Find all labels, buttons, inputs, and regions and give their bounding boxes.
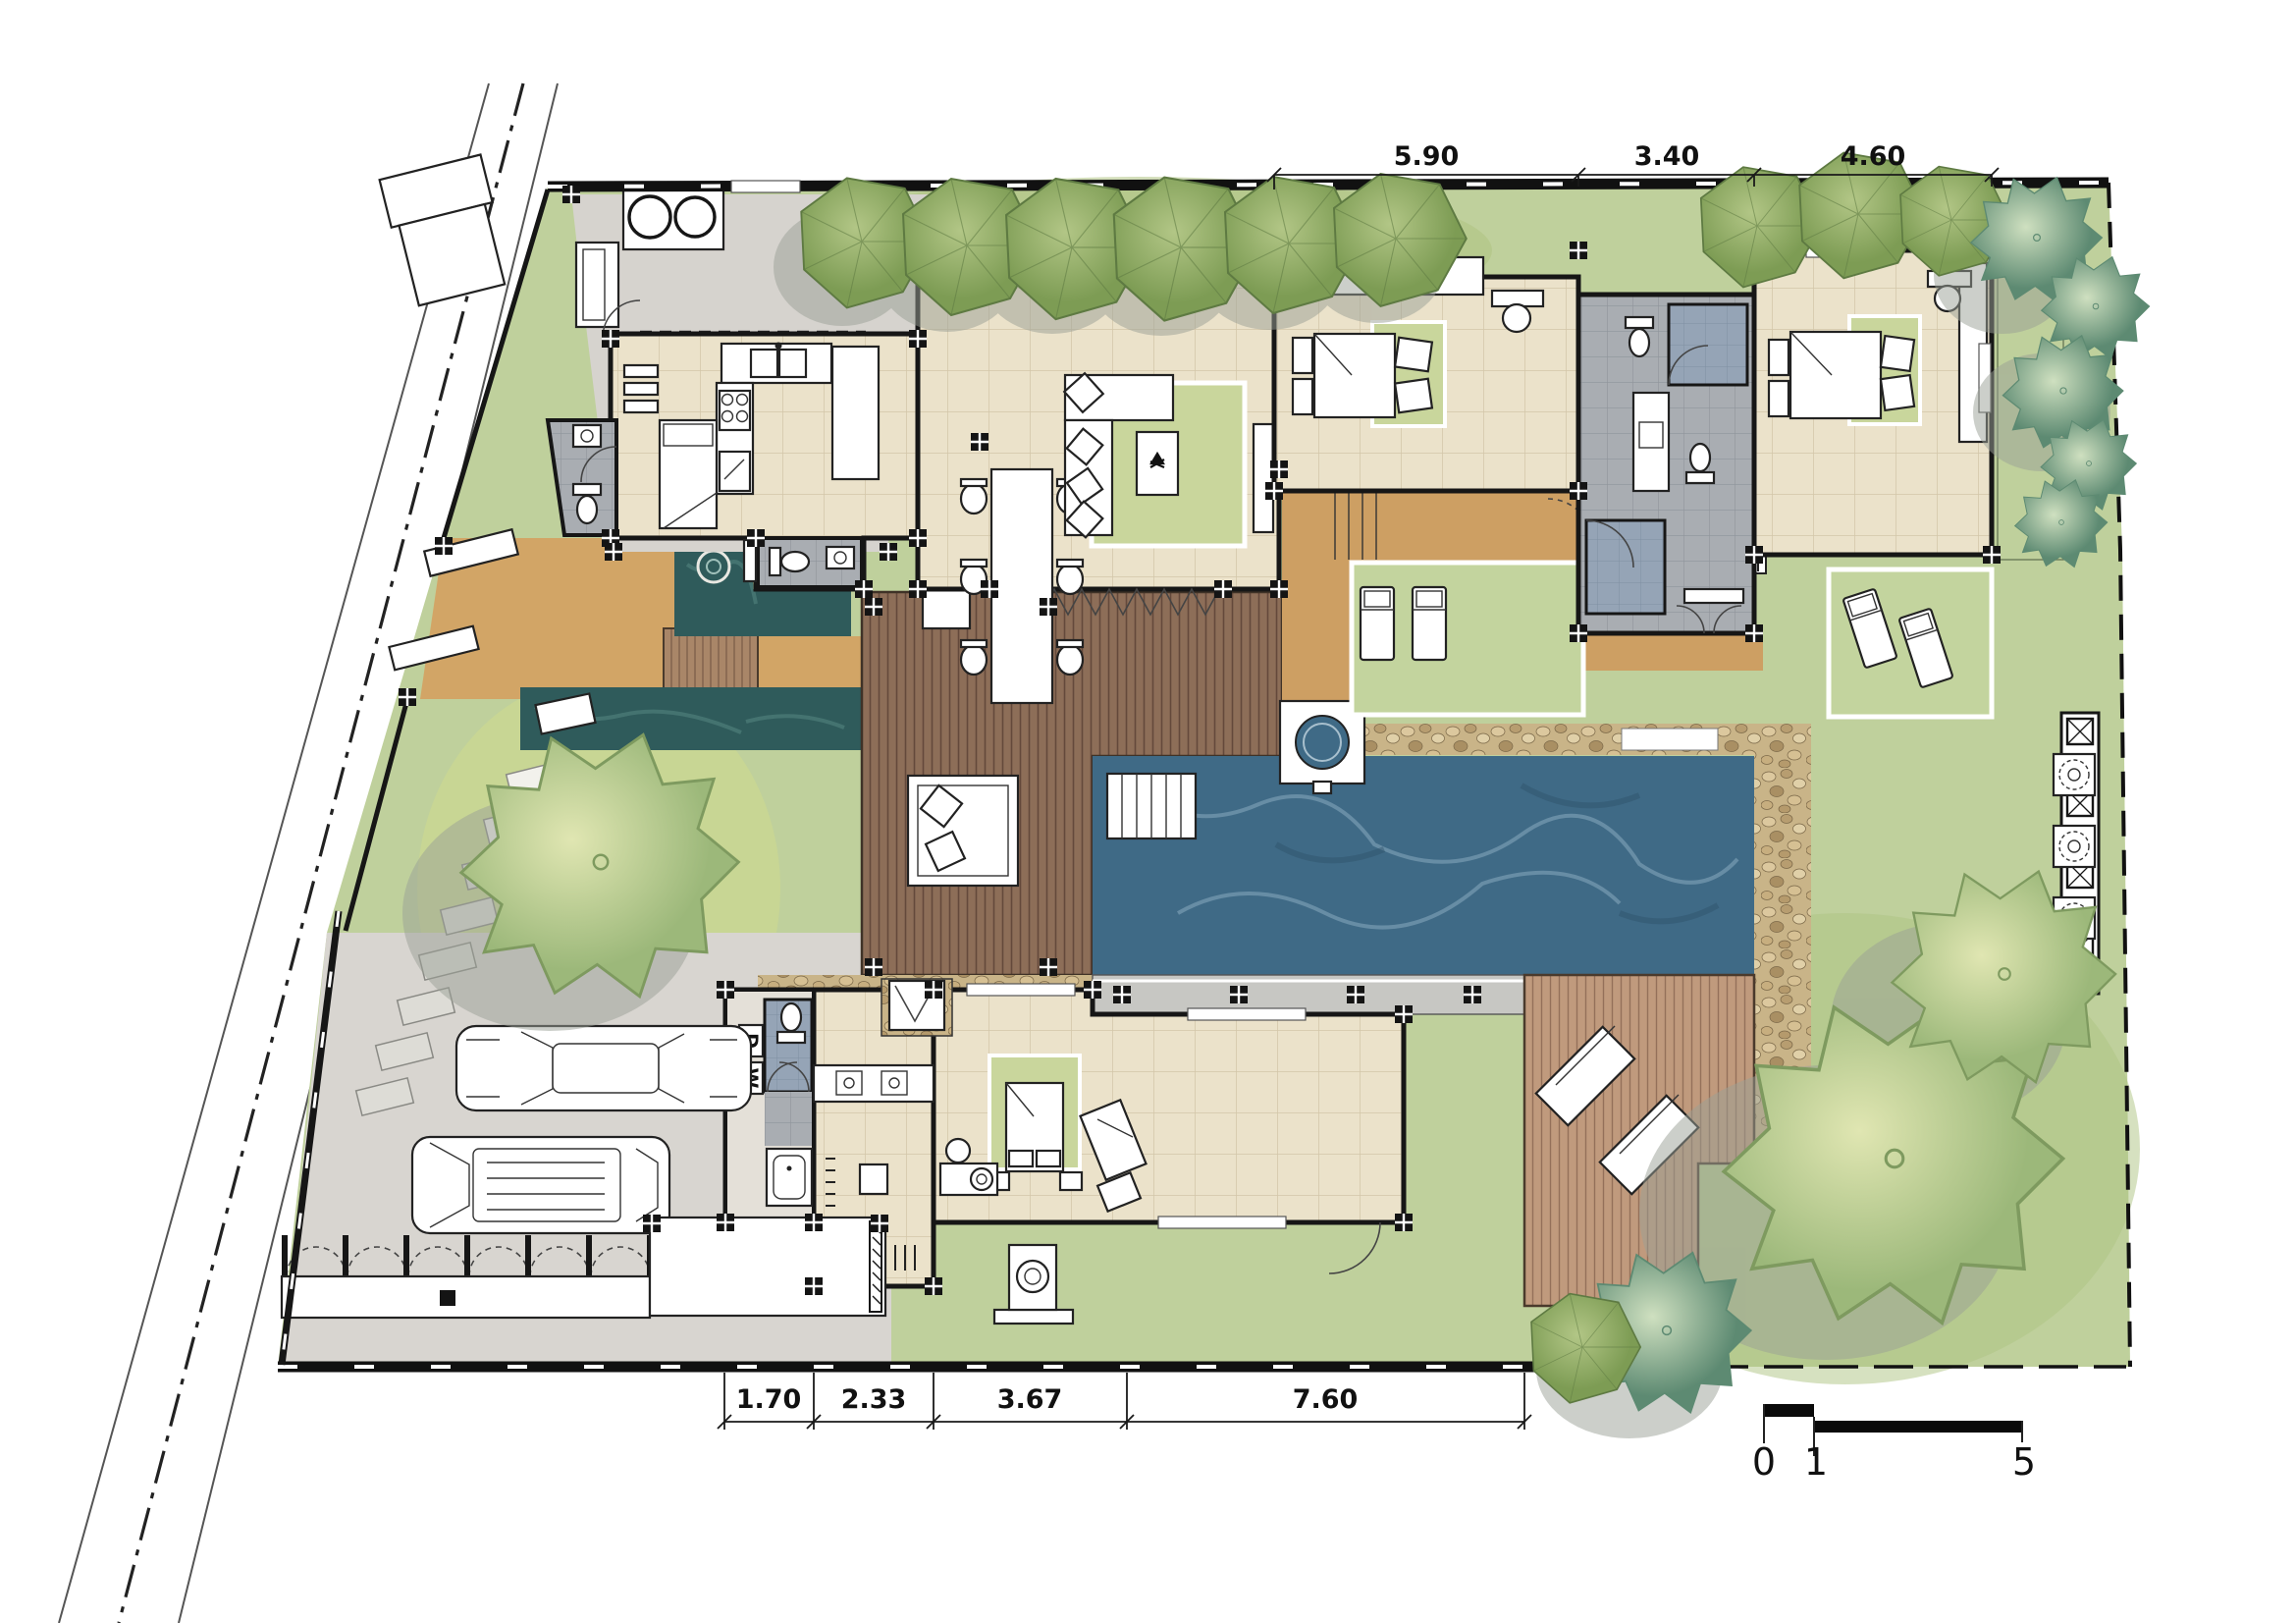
scale-zero: 0 bbox=[1752, 1440, 1776, 1484]
bathroom-block bbox=[1578, 295, 1754, 633]
bedroom2-bed bbox=[1769, 316, 1920, 424]
master-bath-vanity bbox=[814, 1065, 934, 1102]
dim-top-2: 3.40 bbox=[1634, 141, 1700, 172]
pool-walkway bbox=[1093, 975, 1524, 1014]
floor-plan-drawing: D W bbox=[0, 0, 2296, 1623]
scale-five: 5 bbox=[2012, 1440, 2036, 1484]
spa-landing bbox=[1282, 562, 1360, 705]
bedroom1-bed bbox=[1293, 322, 1445, 426]
carport-structure bbox=[650, 1217, 885, 1316]
scale-bar: 0 1 5 bbox=[1752, 1404, 2036, 1484]
refrigerator-pantry bbox=[832, 347, 879, 479]
dim-bottom-2: 2.33 bbox=[841, 1384, 907, 1415]
planter-bench bbox=[282, 1276, 650, 1318]
oven bbox=[720, 452, 750, 491]
water-basin bbox=[698, 551, 729, 582]
shower-2 bbox=[1586, 520, 1665, 614]
closet-island bbox=[860, 1164, 887, 1194]
water-tank-2 bbox=[675, 197, 715, 237]
dimension-bottom: 1.70 2.33 3.67 7.60 bbox=[718, 1373, 1531, 1430]
dim-bottom-1: 1.70 bbox=[736, 1384, 802, 1415]
master-desk-chair bbox=[946, 1139, 970, 1163]
bedroom1-chair bbox=[1503, 304, 1530, 332]
shower-1 bbox=[1669, 304, 1747, 385]
sofa-set bbox=[1064, 373, 1273, 546]
water-tank-1 bbox=[629, 196, 670, 238]
dim-bottom-3: 3.67 bbox=[997, 1384, 1063, 1415]
dining-table bbox=[991, 469, 1052, 703]
entry-bridge bbox=[664, 628, 758, 689]
car-suv bbox=[412, 1137, 669, 1233]
scale-one: 1 bbox=[1804, 1440, 1828, 1484]
stove bbox=[720, 391, 750, 430]
dim-top-1: 5.90 bbox=[1394, 141, 1460, 172]
dim-top-3: 4.60 bbox=[1841, 141, 1906, 172]
dim-bottom-4: 7.60 bbox=[1293, 1384, 1359, 1415]
site-plan-canvas: D W bbox=[0, 0, 2296, 1623]
daybed bbox=[908, 776, 1018, 886]
car-sedan bbox=[456, 1026, 751, 1110]
master-bed bbox=[988, 1055, 1082, 1190]
